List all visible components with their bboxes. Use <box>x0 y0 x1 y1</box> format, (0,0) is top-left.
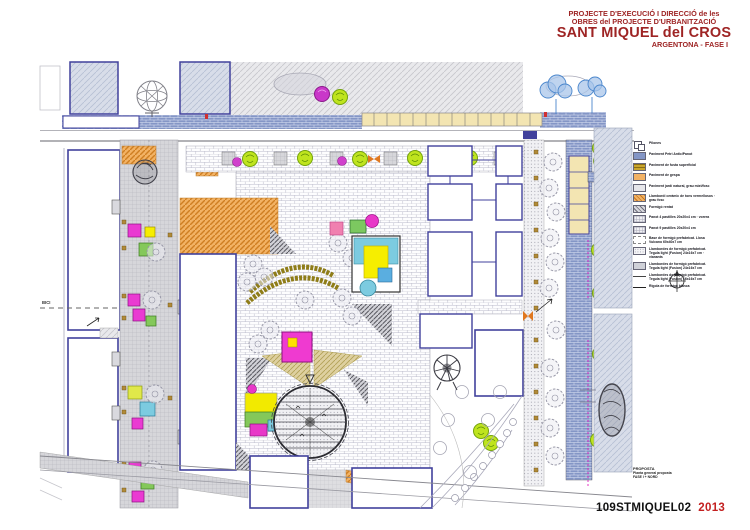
legend-item: Paviment de fusta superficial <box>633 163 725 171</box>
sheet-code-number: 109STMIQUEL02 <box>596 502 691 514</box>
swatch-dash-border <box>633 236 646 244</box>
legend-item: Paviment Petri Antic/Panot <box>633 152 725 160</box>
swatch-solid-blue <box>633 152 646 160</box>
legend-item: Llambordí ceràmic de tons vermellosos · … <box>633 194 725 203</box>
project-title-subtitle: ARGENTONA - FASE I <box>540 41 748 50</box>
legend-item: Llambordes de formigó prefabricat. Tegul… <box>633 247 725 260</box>
legend-item: Panot 9 pastilles 20x20x4 cm <box>633 226 725 234</box>
legend-item: Paviment jardí natural, grau mixt/fosc <box>633 184 725 192</box>
legend-item: Llambordes de formigó prefabricat. Tegul… <box>633 273 725 282</box>
swatch-line-thin <box>633 276 646 277</box>
project-title-block: PROJECTE D'EXECUCIÓ I DIRECCIÓ de les OB… <box>540 10 748 50</box>
legend-item: Panot 4 pastilles 20x20x4 cm · vorera <box>633 215 725 223</box>
swatch-stripes-orange <box>633 194 646 202</box>
sheet-code-year: 2013 <box>698 502 725 514</box>
legend: Pilones Paviment Petri Antic/Panot Pavim… <box>633 141 725 290</box>
legend-item: Pilones <box>633 141 725 150</box>
swatch-dots-dense <box>633 262 646 270</box>
swatch-solid-orange <box>633 173 646 181</box>
project-title-main: SANT MIQUEL del CROS <box>540 26 748 41</box>
swatch-solid-lightgray <box>633 184 646 192</box>
legend-item: Base de formigó prefabricat. Llosa Vulca… <box>633 236 725 245</box>
legend-item: Formigó rentat <box>633 205 725 213</box>
drawing-sheet: BICI PROJECTE D'EXECUCIÓ I DIRECCIÓ de l… <box>0 0 750 530</box>
legend-item: Paviment de gespa <box>633 173 725 181</box>
swatch-line-thick <box>633 287 646 288</box>
bici-label: BICI <box>42 300 50 305</box>
swatch-dots-light <box>633 247 646 255</box>
sheet-code: 109STMIQUEL022013 <box>596 502 725 514</box>
pilona-swatch-icon <box>633 141 646 150</box>
legend-item: Rigola de formigó blanca <box>633 284 725 288</box>
drawing-titleblock: PROPOSTA Planta general proposta FASE I … <box>633 466 672 480</box>
swatch-stripes-gold <box>633 163 646 171</box>
swatch-grid-light <box>633 226 646 234</box>
legend-item: Llambordes de formigó prefabricat. Tegul… <box>633 262 725 271</box>
swatch-hatch-gray <box>633 205 646 213</box>
swatch-grid-light <box>633 215 646 223</box>
titleblock-line3: FASE I + NORD <box>633 475 672 479</box>
